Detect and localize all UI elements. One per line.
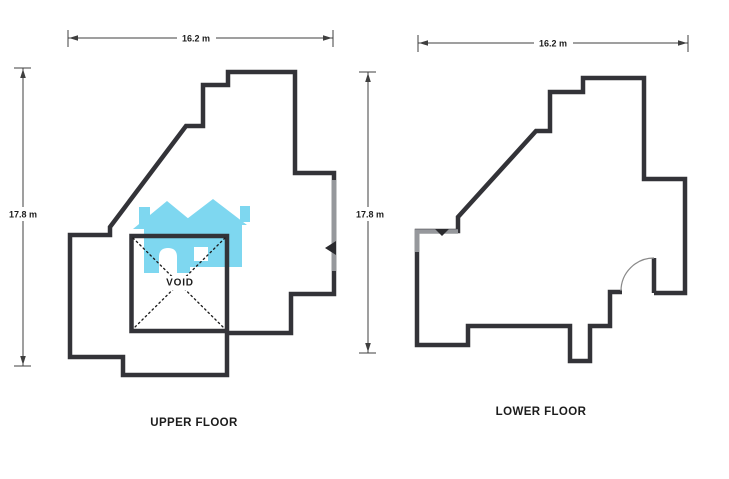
upper-height-label: 17.8 m xyxy=(9,210,37,220)
upper-wall-notch-mark xyxy=(325,241,336,255)
lower-height-label: 17.8 m xyxy=(356,210,384,220)
floor-plan-page: VOID 16.2 m 17.8 m UPPER FLOOR xyxy=(0,0,729,479)
lower-floor-plan xyxy=(417,78,685,361)
floor-plan-drawing: VOID 16.2 m 17.8 m UPPER FLOOR xyxy=(0,0,729,479)
lower-floor-title: LOWER FLOOR xyxy=(496,406,587,418)
door-swing-arc xyxy=(621,258,654,291)
void-label: VOID xyxy=(166,278,194,289)
upper-width-label: 16.2 m xyxy=(182,34,210,44)
watermark-house-right-window xyxy=(194,247,208,261)
upper-floor-title: UPPER FLOOR xyxy=(150,417,238,429)
lower-left-wall-faded-segment xyxy=(417,232,458,253)
lower-width-label: 16.2 m xyxy=(539,39,567,49)
watermark-house-left-door xyxy=(159,248,177,273)
lower-floor-outline xyxy=(417,78,685,361)
